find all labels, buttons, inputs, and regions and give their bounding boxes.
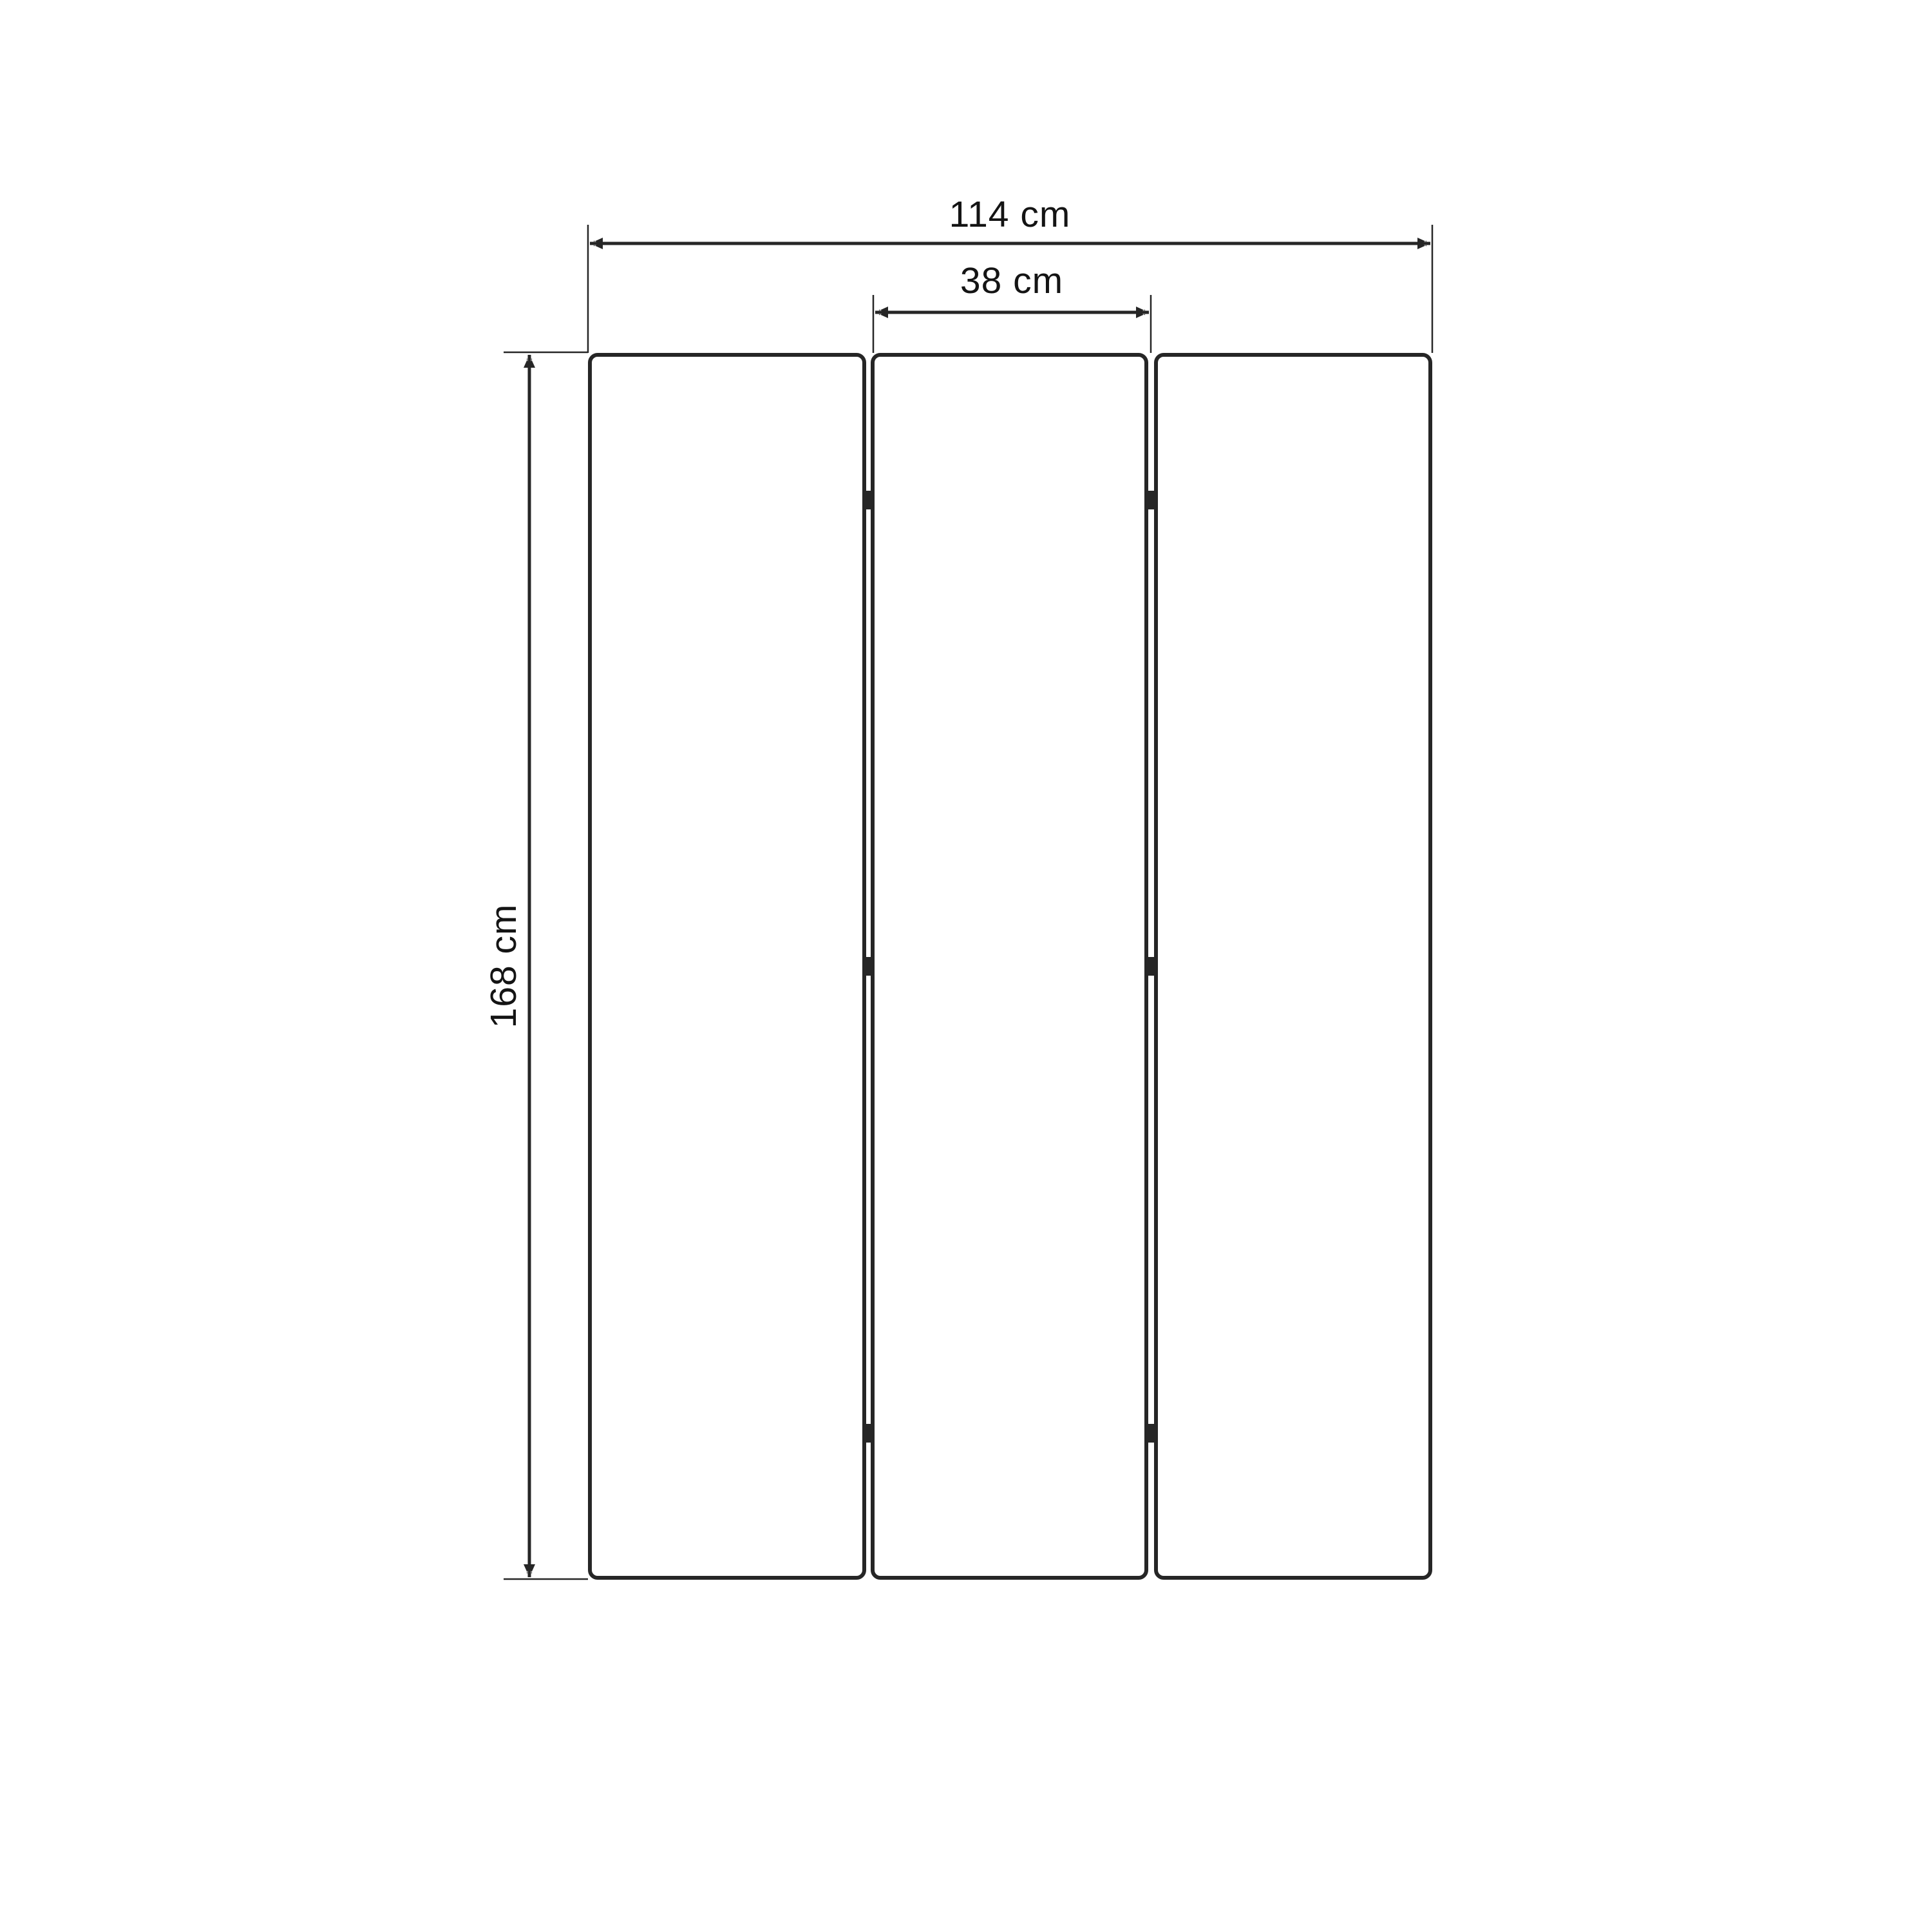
hinge-icon: [864, 957, 873, 976]
hinge-icon: [864, 491, 873, 509]
panel-left: [590, 355, 864, 1578]
dimension-panel-width: 38 cm: [873, 260, 1151, 353]
hinge-icon: [864, 1424, 873, 1443]
dimension-label-height: 168 cm: [483, 904, 524, 1028]
folding-screen: [590, 355, 1430, 1578]
hinge-icon: [1147, 491, 1155, 509]
dimension-label-total-width: 114 cm: [949, 194, 1071, 235]
panel-middle: [873, 355, 1146, 1578]
dimension-label-panel-width: 38 cm: [960, 260, 1063, 301]
hinge-icon: [1147, 957, 1155, 976]
panel-right: [1156, 355, 1430, 1578]
hinge-icon: [1147, 1424, 1155, 1443]
dimension-diagram: 114 cm 38 cm 168 cm: [0, 0, 1932, 1932]
dimension-height: 168 cm: [483, 352, 588, 1579]
